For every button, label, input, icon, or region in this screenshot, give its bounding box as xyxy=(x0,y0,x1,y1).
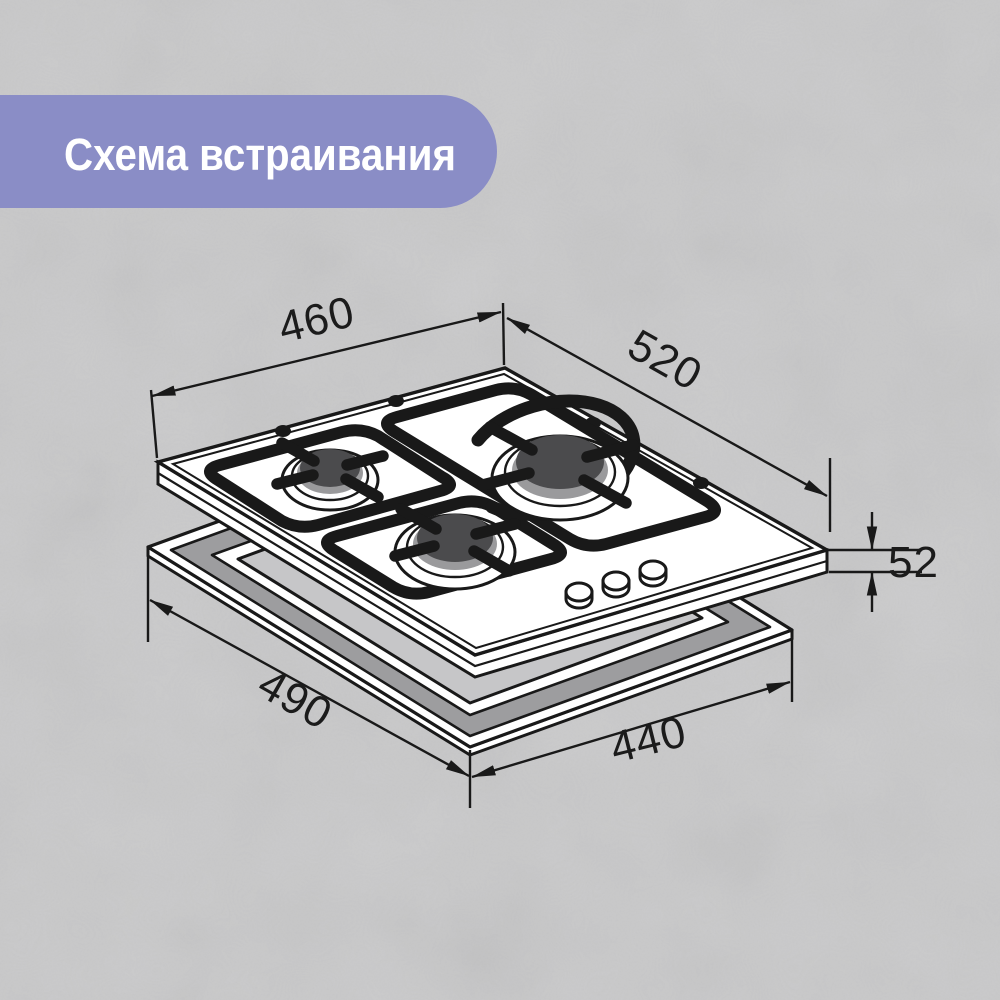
control-knob xyxy=(566,583,592,608)
infographic-page: Схема встраивания xyxy=(0,0,1000,1000)
page-title: Схема встраивания xyxy=(64,129,456,180)
dim-label-built-in-height: 52 xyxy=(888,538,939,587)
control-knob xyxy=(640,561,666,586)
knob-top xyxy=(640,561,666,579)
knob-top xyxy=(603,572,629,590)
grate-foot xyxy=(388,395,404,407)
knob-top xyxy=(566,583,592,601)
grate-foot xyxy=(275,425,291,437)
extension-line-hob-top xyxy=(503,303,504,365)
installation-diagram: Схема встраивания xyxy=(0,0,1000,1000)
title-banner: Схема встраивания xyxy=(0,95,497,208)
control-knob xyxy=(603,572,629,597)
